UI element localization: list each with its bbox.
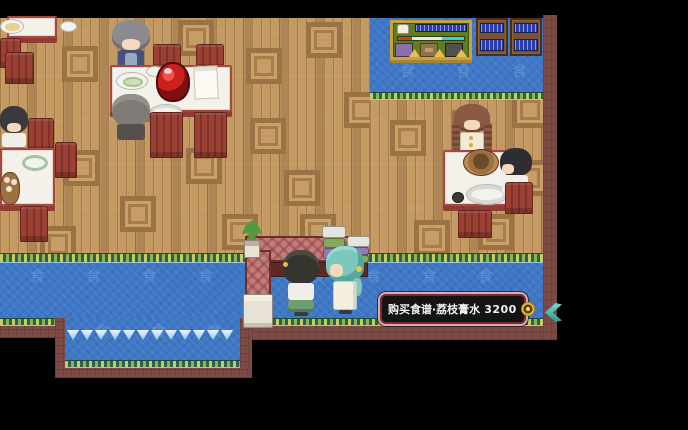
stacked-books [415,24,467,32]
chair [194,112,227,158]
carpet-pattern-glyph: 食 [86,269,101,284]
floor-inlay [250,118,286,154]
chair [150,112,183,158]
carpet-pattern-glyph: 食 [198,269,213,284]
purchase-prompt[interactable]: 购买食谱·荔枝膏水 3200 [378,292,528,326]
bookshelf [510,18,542,56]
potted-plant [241,220,263,260]
menu-board [390,20,472,60]
floor-inlay [390,120,426,156]
carpet-pattern-glyph: 食 [512,64,527,79]
carpet-pattern-glyph: 食 [366,269,381,284]
npc-twintail-girl[interactable] [452,104,492,154]
chair [55,142,77,178]
color-bar [397,36,465,41]
wall-border [0,326,55,338]
purchase-prompt-label: 购买食谱·荔枝膏水 [388,301,480,317]
chair [458,210,492,238]
bamboo-steamer [0,172,20,205]
step-triangle-icon [193,330,205,340]
step-triangle-icon [207,330,219,340]
wall-border [55,368,252,378]
small-plate [60,21,77,32]
menu-paper [193,65,219,99]
step-triangle-icon [221,330,233,340]
step-triangle-icon [179,330,191,340]
npc-shopkeeper[interactable] [326,246,364,316]
step-triangle-icon [67,330,79,340]
game-screen: { "tooltip": { "label": "购买食谱·荔枝膏水", "pr… [0,0,688,430]
carpet-step-triangles [67,330,239,341]
carpet-trim [0,318,55,326]
floor-inlay [284,170,320,206]
npc-diner-back[interactable] [112,94,150,142]
small-cup [452,192,464,203]
price-value: 3200 [484,303,517,316]
wooden-bowl [463,149,499,176]
player-character[interactable] [283,250,319,316]
plate-with-food [0,19,24,34]
floor-inlay [306,22,342,58]
bookshelf [476,18,508,56]
carpet-trim [65,360,240,368]
carpet-pattern-glyph: 食 [422,269,437,284]
wall-border-right [543,15,557,340]
storage-box [243,294,273,328]
coin-icon [521,302,535,316]
wall-border [252,326,543,340]
floor-inlay [62,46,98,82]
chair [505,182,533,214]
flour-sack-icon [397,24,409,34]
carpet-pattern-glyph: 食 [400,64,415,79]
step-triangle-icon [81,330,93,340]
shop-item-tan [420,43,438,57]
shop-item-purple [395,43,413,57]
floor-inlay [414,220,450,256]
chair [28,118,54,152]
step-triangle-icon [165,330,177,340]
plate-with-food [116,72,148,90]
carpet-pattern-glyph: 食 [456,64,471,79]
floor-inlay [246,48,282,84]
step-triangle-icon [123,330,135,340]
red-jar [156,62,190,102]
carpet-pattern-glyph: 食 [142,269,157,284]
chair [20,206,48,242]
floor-inlay [120,196,156,232]
step-triangle-icon [109,330,121,340]
plate-with-food [22,155,48,171]
step-triangle-icon [151,330,163,340]
carpet-pattern-glyph: 食 [30,269,45,284]
step-triangle-icon [95,330,107,340]
carpet-pattern-glyph: 食 [478,269,493,284]
chair [5,52,34,84]
carpet-trim [370,92,543,100]
step-triangle-icon [137,330,149,340]
